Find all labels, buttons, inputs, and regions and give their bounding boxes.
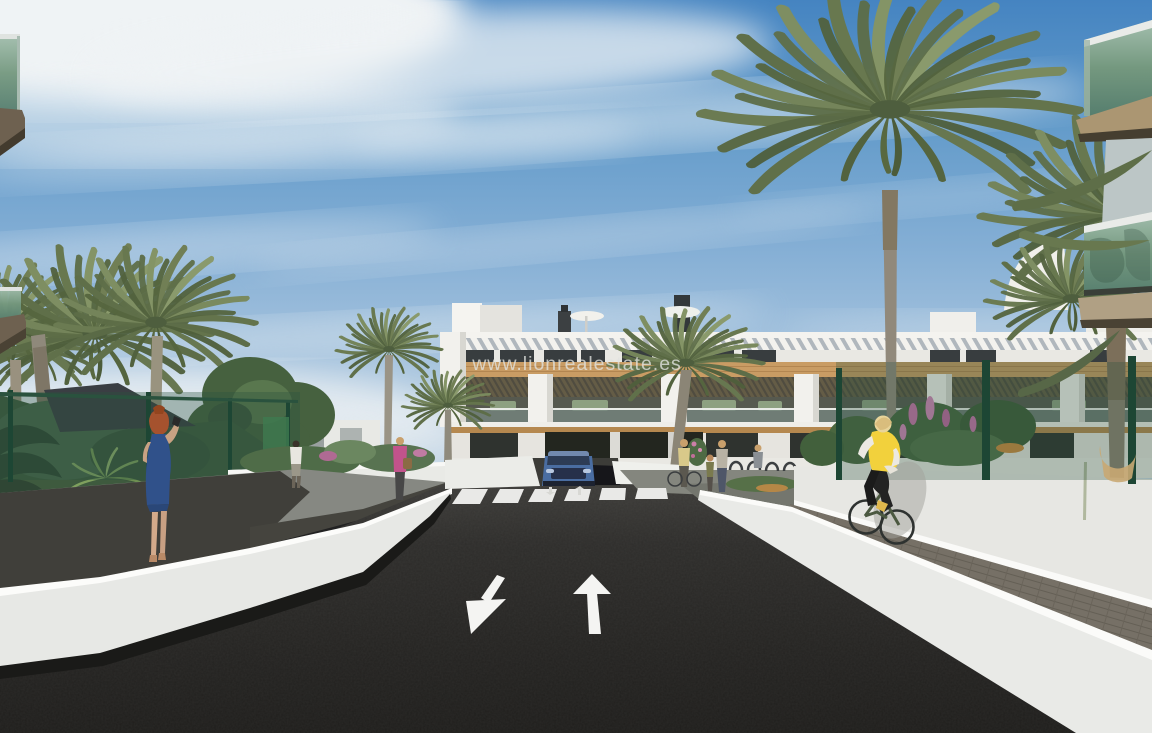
svg-text:www.lionrealestate.es: www.lionrealestate.es bbox=[471, 353, 682, 375]
